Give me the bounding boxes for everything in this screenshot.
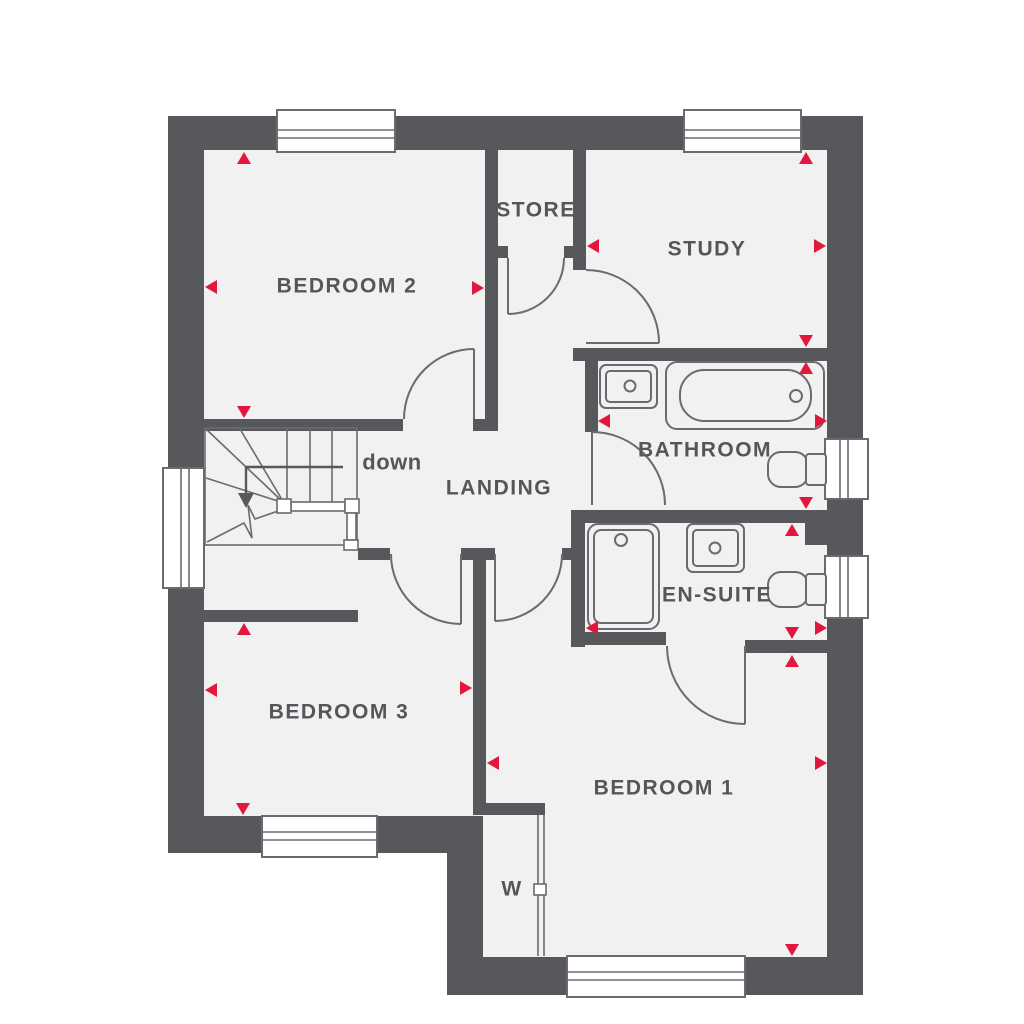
- room-label-bedroom3: BEDROOM 3: [269, 701, 410, 724]
- wall-pier-right: [805, 523, 828, 545]
- ensuite-basin: [687, 524, 744, 572]
- window-ensuite: [825, 556, 868, 618]
- window-bedroom2: [277, 110, 395, 152]
- exterior-wall-step: [447, 816, 483, 995]
- window-study: [684, 110, 801, 152]
- stairs-down-label: down: [362, 450, 421, 475]
- wall-store-stub-left: [485, 246, 508, 258]
- wall-wardrobe-top: [483, 803, 545, 815]
- wall-study-bathroom: [573, 348, 828, 361]
- window-bedroom1: [567, 956, 745, 997]
- bathroom-basin: [600, 365, 657, 408]
- wall-ensuite-landing: [571, 523, 585, 647]
- ensuite-toilet: [768, 572, 826, 607]
- floor-fill: [168, 116, 863, 995]
- window-stairs-left: [163, 468, 204, 588]
- room-label-wardrobe: W: [501, 878, 522, 901]
- wall-landing-stub-right: [562, 548, 585, 560]
- room-label-ensuite: EN-SUITE: [662, 584, 772, 607]
- floor-plan-drawing: BEDROOM 2 STORE STUDY BATHROOM LANDING E…: [0, 0, 1024, 1024]
- room-label-bedroom1: BEDROOM 1: [594, 777, 735, 800]
- room-label-store: STORE: [496, 199, 575, 222]
- window-bedroom3: [262, 816, 377, 857]
- floor-plan-page: BEDROOM 2 STORE STUDY BATHROOM LANDING E…: [0, 0, 1024, 1024]
- wall-bathroom-landing: [585, 361, 598, 432]
- wall-bathroom-ensuite: [571, 510, 828, 523]
- floor-area: [168, 116, 863, 995]
- window-bathroom: [825, 439, 868, 499]
- room-label-landing: LANDING: [446, 477, 552, 500]
- room-label-bathroom: BATHROOM: [638, 439, 772, 462]
- wall-bedroom3-top: [168, 610, 358, 622]
- wall-ensuite-bottom-right: [745, 640, 828, 653]
- wall-bedroom2-landing: [485, 150, 498, 431]
- wall-bedroom3-bedroom1: [473, 556, 486, 815]
- wall-bedroom2-bottom: [168, 419, 403, 431]
- room-label-study: STUDY: [668, 238, 747, 261]
- shower: [588, 524, 659, 629]
- wall-bedroom2-bottom-corner: [473, 419, 498, 431]
- wall-landing-stub-left: [358, 548, 390, 560]
- room-label-bedroom2: BEDROOM 2: [277, 275, 418, 298]
- bathroom-toilet: [768, 452, 826, 487]
